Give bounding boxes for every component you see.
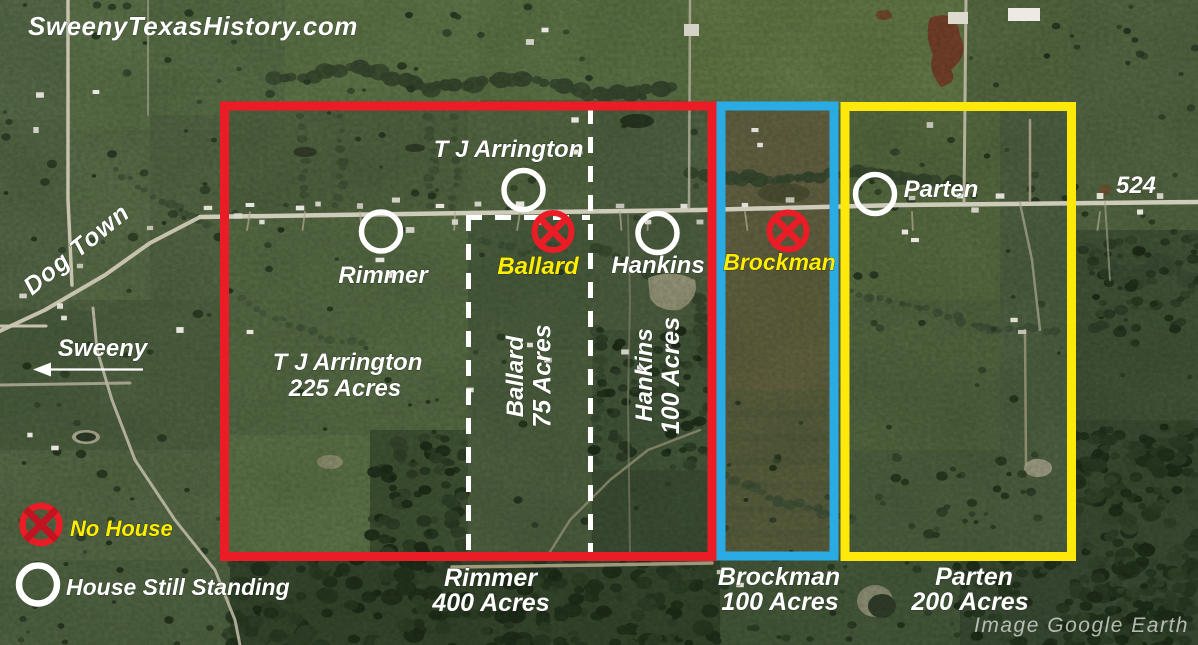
svg-text:400 Acres: 400 Acres [431, 589, 549, 617]
svg-text:100 Acres: 100 Acres [721, 588, 838, 616]
svg-text:T J Arrington: T J Arrington [434, 136, 584, 163]
svg-text:100 Acres: 100 Acres [657, 317, 685, 434]
svg-text:Hankins: Hankins [611, 252, 704, 279]
svg-text:Parten: Parten [935, 563, 1013, 591]
svg-text:75 Acres: 75 Acres [529, 324, 557, 427]
svg-text:225 Acres: 225 Acres [288, 375, 402, 402]
svg-text:Brockman: Brockman [718, 563, 840, 591]
svg-text:Brockman: Brockman [723, 249, 835, 275]
svg-text:Image Google Earth: Image Google Earth [974, 614, 1189, 637]
svg-text:200 Acres: 200 Acres [910, 588, 1028, 616]
svg-text:No House: No House [70, 516, 173, 541]
svg-text:Parten: Parten [904, 176, 979, 203]
svg-text:T J Arrington: T J Arrington [273, 349, 423, 376]
svg-text:Rimmer: Rimmer [444, 564, 538, 592]
svg-text:Sweeny: Sweeny [58, 335, 149, 362]
svg-text:524: 524 [1116, 172, 1156, 199]
svg-text:Ballard: Ballard [502, 334, 529, 417]
svg-text:Rimmer: Rimmer [338, 262, 429, 289]
svg-text:Ballard: Ballard [497, 253, 580, 280]
svg-text:Hankins: Hankins [631, 328, 658, 421]
svg-text:SweenyTexasHistory.com: SweenyTexasHistory.com [28, 11, 358, 41]
svg-text:House Still Standing: House Still Standing [66, 574, 290, 600]
